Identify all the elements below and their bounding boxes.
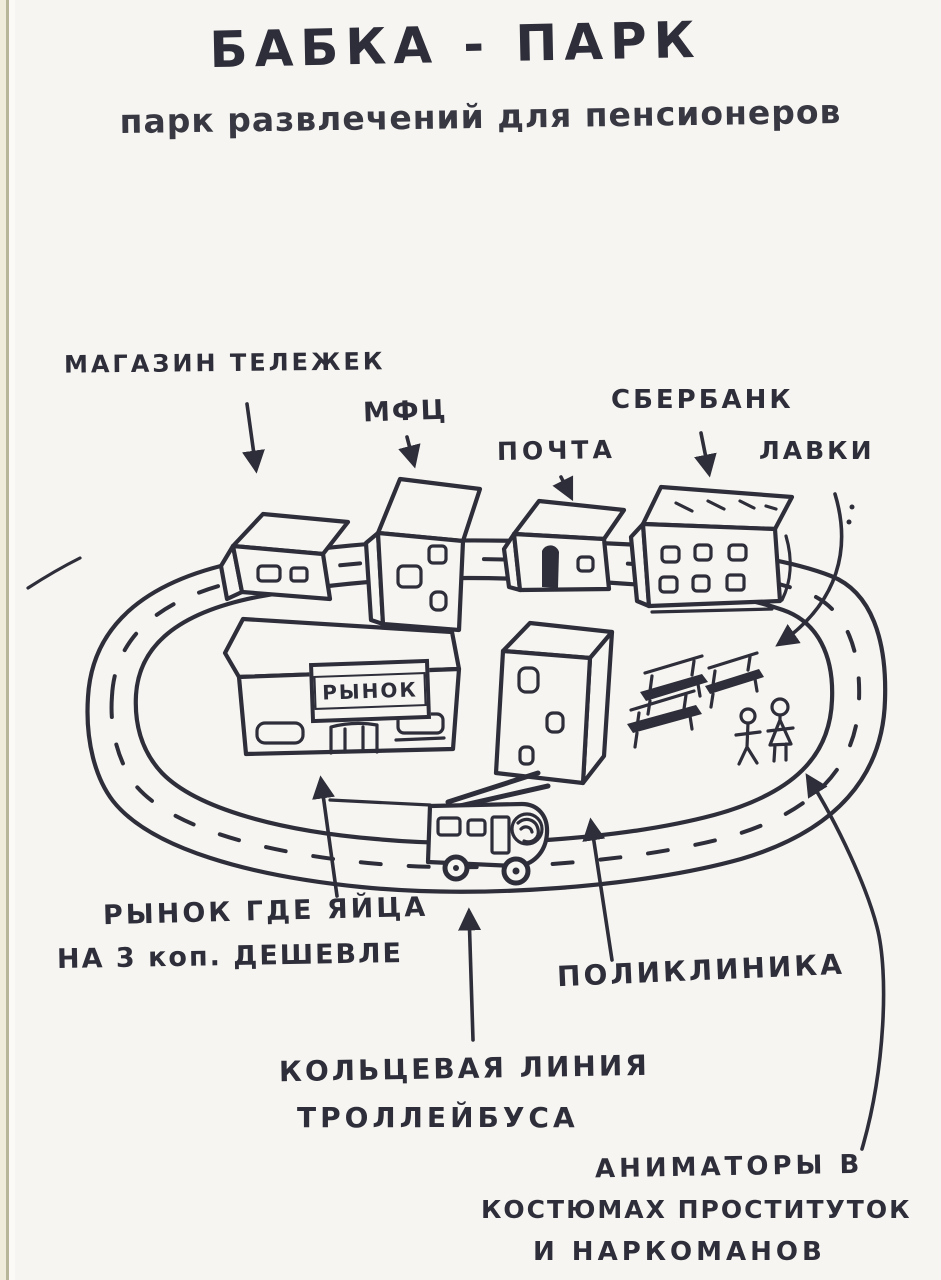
- stick-figure-man: [736, 709, 760, 764]
- market-sign: РЫНОК: [309, 659, 431, 723]
- stick-figure-woman: [768, 699, 793, 761]
- arrow-ring-line: [469, 912, 473, 1040]
- wheel-hub: [453, 865, 459, 871]
- polyclinic-building: [496, 623, 612, 783]
- door: [542, 545, 559, 588]
- ink-dot: [847, 520, 852, 525]
- trolley-wire: [330, 800, 430, 805]
- label-mfc: МФЦ: [363, 397, 449, 427]
- trolleybus: [330, 773, 548, 883]
- market-sign-text: РЫНОК: [314, 672, 427, 710]
- label-cart-store: МАГАЗИН ТЕЛЕЖЕК: [64, 349, 386, 376]
- label-sberbank: СБЕРБАНК: [611, 387, 794, 413]
- arrow-post-office: [561, 477, 571, 497]
- ink-dot: [850, 505, 855, 510]
- road-entry-stroke: [28, 558, 80, 588]
- wheel-hub: [513, 868, 520, 875]
- mfc-building: [366, 479, 480, 638]
- arrow-market-note: [321, 780, 337, 896]
- park-map-drawing: [0, 0, 941, 1280]
- arrow-sberbank: [701, 433, 709, 473]
- label-ring-line-line1: КОЛЬЦЕВАЯ ЛИНИЯ: [279, 1052, 650, 1086]
- sberbank-building: [631, 487, 792, 612]
- post-building: [504, 501, 624, 590]
- cart-store-building: [221, 514, 348, 599]
- arrow-mfc: [407, 437, 414, 464]
- label-market-note-line1: РЫНОК ГДЕ ЯЙЦА: [103, 894, 429, 930]
- label-animators-line2: КОСТЮМАХ ПРОСТИТУТОК: [481, 1197, 912, 1222]
- arrow-polyclinic: [591, 822, 612, 960]
- label-animators-line3: И НАРКОМАНОВ: [533, 1239, 826, 1265]
- label-animators-line1: АНИМАТОРЫ В: [595, 1152, 864, 1183]
- label-benches: ЛАВКИ: [759, 438, 875, 463]
- bench: [627, 691, 702, 747]
- stick-figures: [736, 699, 793, 764]
- arrow-cart-store: [247, 404, 256, 469]
- bench: [705, 653, 764, 707]
- label-post-office: ПОЧТА: [497, 437, 616, 464]
- sketch-page: БАБКА - ПАРК парк развлечений для пенсио…: [0, 0, 941, 1280]
- label-market-note-line2: НА 3 коп. ДЕШЕВЛЕ: [57, 940, 403, 973]
- label-ring-line-line2: ТРОЛЛЕЙБУСА: [297, 1104, 579, 1132]
